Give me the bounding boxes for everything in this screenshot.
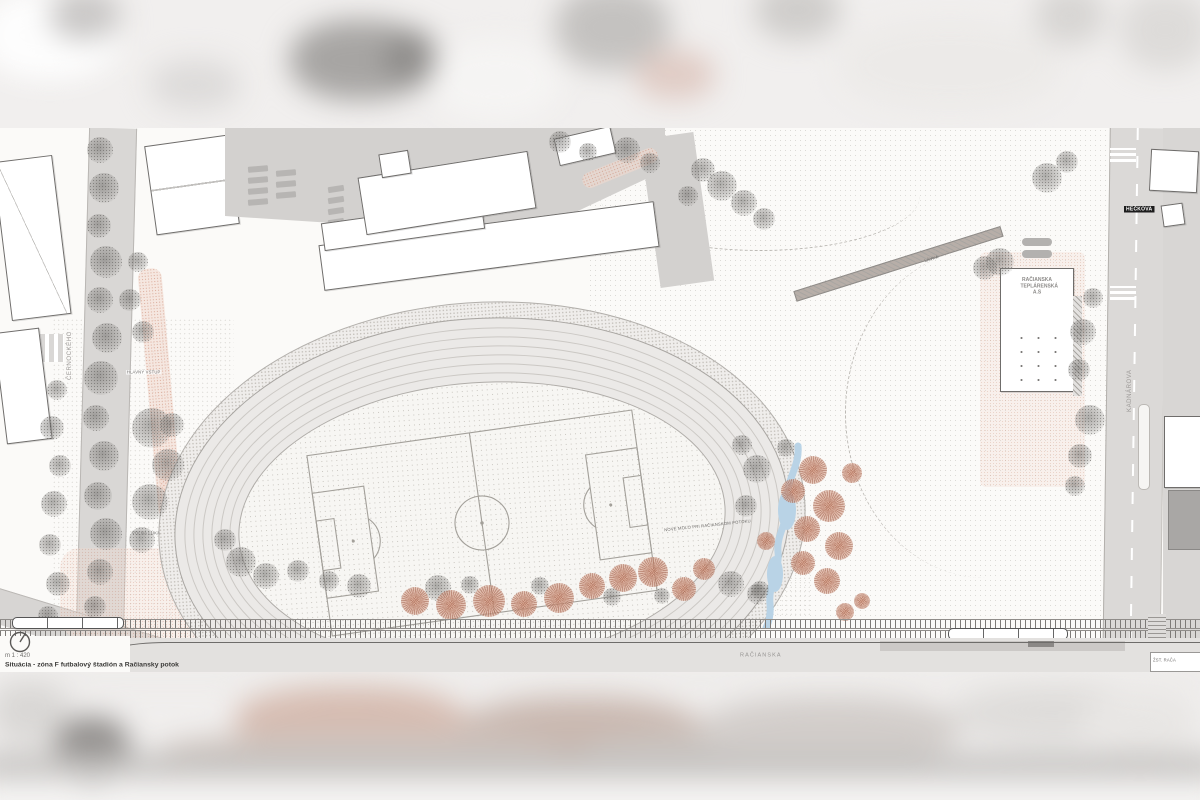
- site-plan-canvas: LÁVKA RAČIANSKA TEPLÁRENSKÁ A.S NOVÉ MOL…: [0, 0, 1200, 800]
- tree-gray: [84, 482, 112, 510]
- tree-gray: [83, 405, 109, 431]
- tree-gray: [89, 441, 119, 471]
- tree-gray: [777, 439, 795, 457]
- rail-stop-label: ŽST. RAČA: [1153, 658, 1176, 663]
- tree-gray: [654, 588, 670, 604]
- tree-red: [825, 532, 853, 560]
- tree-gray: [1056, 151, 1078, 173]
- tree-gray: [89, 173, 119, 203]
- tree-gray: [751, 581, 769, 599]
- tree-red: [799, 456, 827, 484]
- tree-gray: [87, 137, 113, 163]
- tree-gray: [287, 560, 309, 582]
- tree-gray: [531, 577, 549, 595]
- tree-gray: [39, 534, 61, 556]
- site-plan: LÁVKA RAČIANSKA TEPLÁRENSKÁ A.S NOVÉ MOL…: [0, 128, 1200, 672]
- plan-edge-curve: [96, 642, 1200, 671]
- tree-red: [511, 591, 537, 617]
- tree-red: [436, 590, 466, 620]
- tree-gray: [41, 491, 67, 517]
- tree-gray: [132, 408, 172, 448]
- tree-gray: [347, 574, 371, 598]
- tree-gray: [46, 572, 70, 596]
- tree-red: [814, 568, 840, 594]
- tree-red: [791, 551, 815, 575]
- tree-layer: [0, 128, 1200, 672]
- tree-red: [401, 587, 429, 615]
- tree-gray: [691, 158, 715, 182]
- tree-gray: [49, 455, 71, 477]
- tree-gray: [92, 323, 122, 353]
- tree-gray: [226, 547, 256, 577]
- tree-red: [813, 490, 845, 522]
- tree-gray: [718, 571, 744, 597]
- tree-gray: [152, 449, 184, 481]
- tree-gray: [160, 413, 184, 437]
- tree-red: [757, 532, 775, 550]
- tree-red: [794, 516, 820, 542]
- tree-gray: [87, 214, 111, 238]
- tree-gray: [132, 321, 154, 343]
- tree-red: [854, 593, 870, 609]
- tree-gray: [84, 596, 106, 618]
- tree-gray: [84, 361, 118, 395]
- scale-label: m 1 : 420: [5, 652, 30, 659]
- tree-gray: [1083, 288, 1103, 308]
- tree-gray: [579, 143, 597, 161]
- tree-gray: [87, 287, 113, 313]
- tree-gray: [640, 153, 660, 173]
- tree-gray: [986, 248, 1014, 276]
- tree-gray: [1075, 405, 1105, 435]
- tree-gray: [743, 455, 771, 483]
- tree-red: [672, 577, 696, 601]
- tree-gray: [603, 588, 621, 606]
- train-west: [12, 617, 124, 629]
- tree-gray: [753, 208, 775, 230]
- tree-gray: [735, 495, 757, 517]
- tree-gray: [707, 171, 737, 201]
- tree-gray: [1068, 444, 1092, 468]
- tree-gray: [614, 137, 640, 163]
- tree-gray: [1068, 359, 1090, 381]
- tree-gray: [1032, 163, 1062, 193]
- tree-gray: [40, 416, 64, 440]
- blurred-band-bottom: [0, 672, 1200, 800]
- tree-gray: [319, 571, 339, 591]
- blurred-band-top: [0, 0, 1200, 128]
- tree-gray: [461, 576, 479, 594]
- tree-gray: [678, 186, 698, 206]
- tree-gray: [128, 252, 148, 272]
- tree-red: [842, 463, 862, 483]
- tree-red: [781, 479, 805, 503]
- tree-red: [693, 558, 715, 580]
- tree-red: [579, 573, 605, 599]
- street-label-racianska: RAČIANSKA: [740, 652, 782, 658]
- tree-gray: [214, 529, 236, 551]
- tree-red: [473, 585, 505, 617]
- tree-gray: [973, 256, 997, 280]
- plan-title: Situácia - zóna F futbalový štadión a Ra…: [5, 661, 179, 668]
- tree-gray: [90, 518, 122, 550]
- tree-red: [609, 564, 637, 592]
- tree-gray: [1065, 476, 1085, 496]
- tree-gray: [731, 190, 757, 216]
- tree-gray: [87, 559, 113, 585]
- tree-gray: [253, 563, 279, 589]
- tree-red: [638, 557, 668, 587]
- tree-gray: [549, 131, 571, 153]
- tree-gray: [425, 575, 451, 601]
- rail-stop-tag: ŽST. RAČA: [1150, 652, 1200, 672]
- tree-gray: [129, 527, 155, 553]
- north-arrow-icon: [8, 630, 32, 654]
- tree-gray: [90, 246, 122, 278]
- tree-gray: [47, 380, 67, 400]
- tree-gray: [132, 484, 168, 520]
- tree-red: [544, 583, 574, 613]
- tree-gray: [732, 435, 752, 455]
- tree-gray: [1070, 319, 1096, 345]
- tree-gray: [119, 289, 141, 311]
- tree-gray: [747, 584, 767, 604]
